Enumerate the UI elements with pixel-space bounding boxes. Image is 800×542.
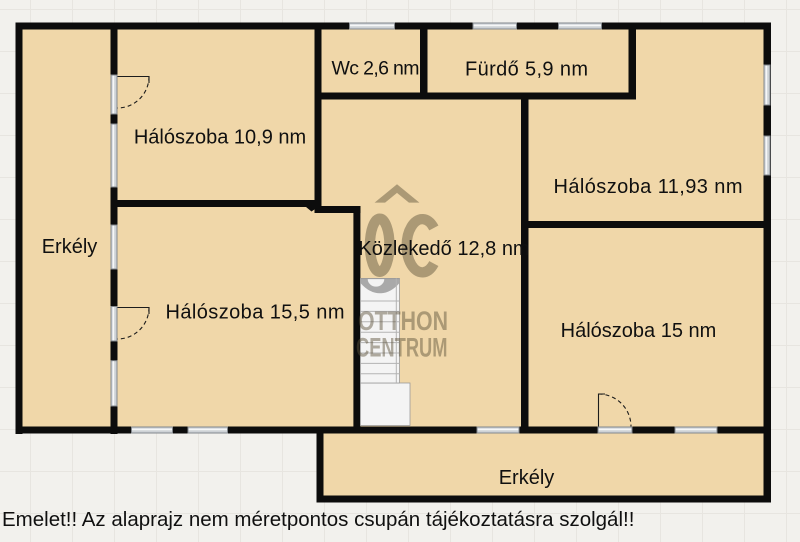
svg-text:Erkély: Erkély — [499, 467, 555, 489]
svg-text:CENTRUM: CENTRUM — [356, 333, 448, 363]
svg-text:Hálószoba 15,5 nm: Hálószoba 15,5 nm — [166, 302, 345, 324]
svg-text:Hálószoba 11,93 nm: Hálószoba 11,93 nm — [554, 176, 743, 198]
svg-text:Közlekedő 12,8 nm: Közlekedő 12,8 nm — [358, 238, 529, 260]
svg-text:Erkély: Erkély — [42, 236, 98, 258]
svg-text:Emelet!! Az alaprajz nem méret: Emelet!! Az alaprajz nem méretpontos csu… — [2, 508, 634, 531]
svg-text:Wc 2,6 nm: Wc 2,6 nm — [332, 58, 420, 80]
svg-text:OTTHON: OTTHON — [358, 306, 448, 336]
svg-text:Hálószoba 10,9 nm: Hálószoba 10,9 nm — [134, 127, 306, 149]
svg-text:Fürdő 5,9 nm: Fürdő 5,9 nm — [465, 59, 588, 81]
svg-text:Hálószoba 15 nm: Hálószoba 15 nm — [561, 320, 717, 342]
